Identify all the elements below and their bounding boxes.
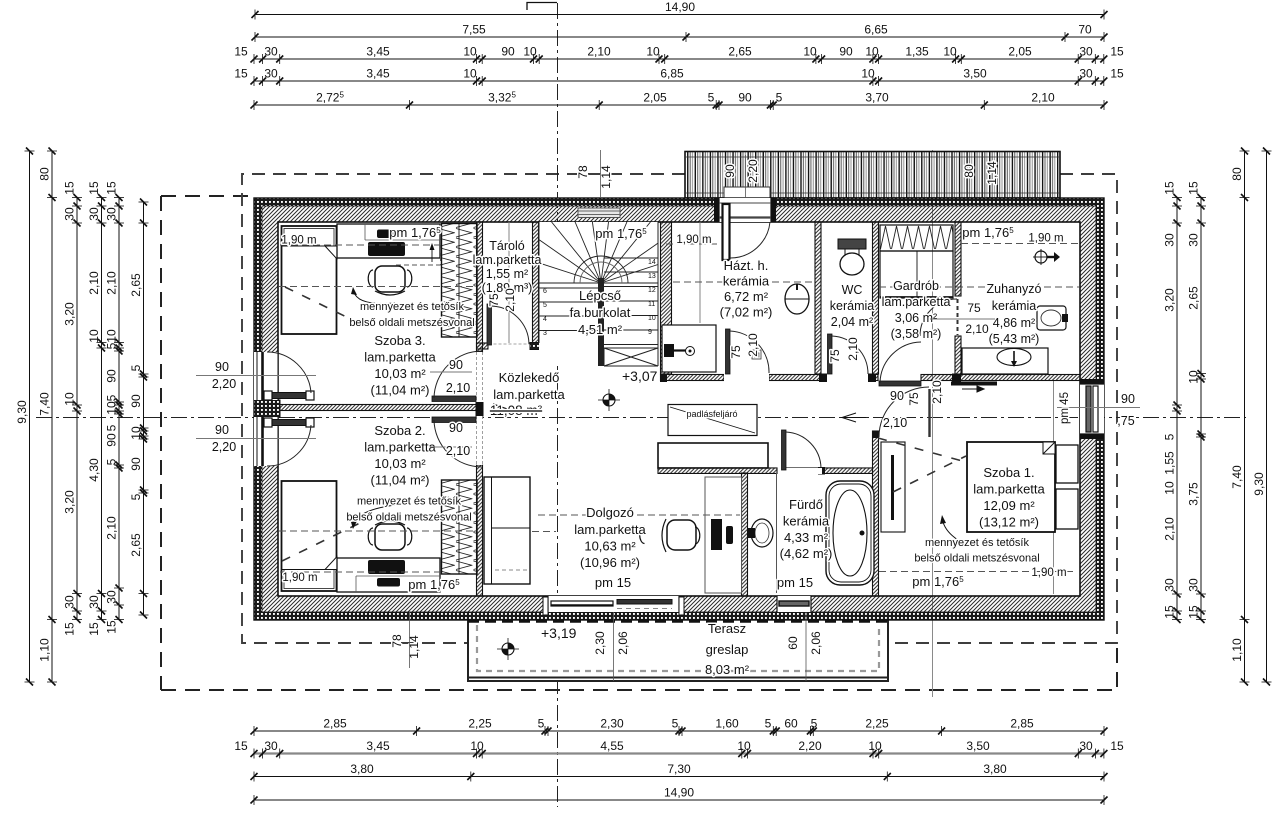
svg-text:3,45: 3,45: [366, 45, 390, 59]
svg-text:30: 30: [264, 67, 278, 81]
svg-text:14,90: 14,90: [664, 786, 694, 800]
svg-text:12,09 m²: 12,09 m²: [983, 498, 1035, 513]
svg-text:belső oldali metszésvonal: belső oldali metszésvonal: [346, 512, 471, 524]
svg-text:pm 1,765: pm 1,765: [962, 225, 1014, 240]
svg-text:3,20: 3,20: [63, 490, 77, 514]
svg-text:90: 90: [723, 164, 737, 178]
svg-text:4,33 m²: 4,33 m²: [784, 530, 829, 545]
svg-text:1,60: 1,60: [715, 717, 739, 731]
svg-text:Zuhanyzó: Zuhanyzó: [987, 282, 1042, 296]
svg-text:lam.parketta: lam.parketta: [493, 387, 565, 402]
svg-text:Gardrób: Gardrób: [893, 279, 939, 293]
svg-text:mennyezet és tetősík: mennyezet és tetősík: [925, 537, 1029, 549]
svg-text:(4,62 m²): (4,62 m²): [780, 546, 833, 561]
svg-text:mennyezet és tetősík: mennyezet és tetősík: [357, 496, 461, 508]
svg-text:15: 15: [234, 67, 248, 81]
svg-text:78: 78: [390, 634, 404, 648]
svg-text:15: 15: [1163, 605, 1177, 619]
svg-text:30: 30: [264, 739, 278, 753]
svg-text:90: 90: [105, 369, 119, 383]
svg-text:Terasz: Terasz: [708, 621, 746, 636]
svg-text:1,90 m: 1,90 m: [1031, 567, 1066, 579]
svg-text:3,20: 3,20: [1163, 288, 1177, 312]
svg-text:1,14: 1,14: [599, 165, 613, 189]
svg-text:10: 10: [1187, 370, 1201, 384]
svg-text:2,20: 2,20: [212, 440, 236, 454]
svg-text:2,65: 2,65: [1187, 286, 1201, 310]
svg-text:70: 70: [1078, 23, 1092, 37]
svg-text:2,20: 2,20: [798, 739, 822, 753]
svg-text:1,55: 1,55: [1163, 451, 1177, 475]
svg-text:5: 5: [129, 493, 143, 500]
svg-text:2,20: 2,20: [746, 159, 760, 183]
svg-text:3: 3: [543, 330, 547, 337]
svg-text:2,05: 2,05: [643, 91, 667, 105]
svg-text:Fürdő: Fürdő: [789, 497, 823, 512]
svg-text:10: 10: [737, 739, 751, 753]
svg-text:13: 13: [648, 273, 656, 280]
svg-text:lam.parketta: lam.parketta: [364, 440, 436, 455]
svg-text:2,85: 2,85: [1010, 717, 1034, 731]
svg-text:10: 10: [105, 329, 119, 343]
svg-text:15: 15: [1187, 605, 1201, 619]
svg-text:padlásfeljáró: padlásfeljáró: [686, 409, 737, 419]
svg-text:90: 90: [449, 358, 463, 372]
svg-text:1,10: 1,10: [1230, 638, 1244, 662]
svg-text:11,08 m²: 11,08 m²: [490, 403, 543, 418]
svg-text:30: 30: [264, 45, 278, 59]
svg-text:5: 5: [105, 394, 119, 401]
svg-text:2,04 m²: 2,04 m²: [831, 315, 873, 329]
svg-text:10: 10: [63, 392, 77, 406]
svg-text:kerámia: kerámia: [723, 274, 770, 289]
svg-text:5: 5: [708, 91, 715, 105]
svg-text:(11,04 m²): (11,04 m²): [371, 473, 430, 488]
svg-text:5: 5: [129, 364, 143, 371]
svg-text:1,90 m: 1,90 m: [282, 572, 317, 584]
svg-text:pm 1,765: pm 1,765: [595, 226, 647, 241]
svg-text:(13,12 m²): (13,12 m²): [979, 515, 1039, 530]
svg-text:5: 5: [1163, 433, 1177, 440]
svg-text:2,10: 2,10: [446, 381, 470, 395]
svg-text:5: 5: [765, 717, 772, 731]
svg-text:78: 78: [576, 165, 590, 179]
svg-text:2,65: 2,65: [129, 533, 143, 557]
svg-text:1,55 m²: 1,55 m²: [486, 267, 528, 281]
svg-text:90: 90: [105, 433, 119, 447]
svg-text:15: 15: [1163, 181, 1177, 195]
svg-text:4,55: 4,55: [600, 739, 624, 753]
svg-text:10: 10: [470, 739, 484, 753]
svg-text:5: 5: [105, 342, 119, 349]
svg-text:2,06: 2,06: [809, 631, 823, 655]
svg-text:4,30: 4,30: [87, 458, 101, 482]
svg-text:75: 75: [729, 345, 743, 359]
svg-text:7,30: 7,30: [667, 762, 691, 776]
svg-text:80: 80: [1230, 167, 1244, 181]
svg-text:2,10: 2,10: [930, 380, 944, 404]
svg-text:15: 15: [1110, 739, 1124, 753]
svg-text:1,14: 1,14: [985, 161, 999, 185]
svg-text:3,45: 3,45: [366, 67, 390, 81]
svg-text:15: 15: [105, 181, 119, 195]
svg-text:90: 90: [215, 423, 229, 437]
svg-text:10: 10: [463, 67, 477, 81]
svg-text:5: 5: [776, 91, 783, 105]
svg-text:7,55: 7,55: [462, 23, 486, 37]
svg-text:Közlekedő: Közlekedő: [499, 370, 560, 385]
svg-text:2,10: 2,10: [965, 322, 989, 336]
svg-text:lam.parketta: lam.parketta: [882, 295, 951, 309]
svg-text:10: 10: [523, 45, 537, 59]
svg-text:2,10: 2,10: [587, 45, 611, 59]
svg-text:2,65: 2,65: [129, 273, 143, 297]
svg-text:Dolgozó: Dolgozó: [586, 505, 634, 520]
svg-text:5: 5: [538, 717, 545, 731]
svg-text:10: 10: [1163, 481, 1177, 495]
svg-text:3,06 m²: 3,06 m²: [895, 311, 937, 325]
svg-text:Szoba 3.: Szoba 3.: [374, 333, 425, 348]
svg-text:30: 30: [1163, 578, 1177, 592]
svg-text:lam.parketta: lam.parketta: [473, 253, 542, 267]
svg-text:pm 1,765: pm 1,765: [408, 577, 460, 592]
svg-text:belső oldali metszésvonal: belső oldali metszésvonal: [914, 553, 1039, 565]
svg-text:90: 90: [215, 360, 229, 374]
svg-text:10: 10: [803, 45, 817, 59]
svg-text:30: 30: [105, 207, 119, 221]
svg-text:4,51 m²: 4,51 m²: [578, 322, 623, 337]
svg-text:11: 11: [648, 301, 655, 308]
svg-text:15: 15: [1187, 181, 1201, 195]
svg-text:10: 10: [868, 739, 882, 753]
svg-text:6,85: 6,85: [660, 67, 684, 81]
svg-text:15: 15: [105, 620, 119, 634]
svg-text:pm 1,765: pm 1,765: [912, 574, 964, 589]
svg-text:60: 60: [786, 636, 800, 650]
svg-text:90: 90: [1121, 392, 1135, 406]
svg-text:30: 30: [87, 595, 101, 609]
svg-text:9,30: 9,30: [15, 400, 29, 424]
svg-text:(11,04 m²): (11,04 m²): [371, 383, 430, 398]
svg-text:6,65: 6,65: [864, 23, 888, 37]
svg-text:30: 30: [1079, 45, 1093, 59]
svg-text:60: 60: [784, 717, 798, 731]
svg-text:1,90 m: 1,90 m: [676, 234, 711, 246]
svg-text:2,10: 2,10: [746, 333, 760, 357]
svg-text:30: 30: [87, 207, 101, 221]
svg-text:2,10: 2,10: [87, 271, 101, 295]
svg-text:6,72 m²: 6,72 m²: [724, 289, 769, 304]
svg-text:1,90 m: 1,90 m: [281, 235, 316, 247]
svg-text:3,45: 3,45: [366, 739, 390, 753]
svg-text:Tároló: Tároló: [489, 239, 524, 253]
svg-text:10: 10: [129, 426, 143, 440]
svg-text:10: 10: [648, 315, 656, 322]
svg-text:2,10: 2,10: [105, 271, 119, 295]
svg-text:3,70: 3,70: [865, 91, 889, 105]
svg-text:90: 90: [839, 45, 853, 59]
svg-text:90: 90: [890, 389, 904, 403]
svg-text:(7,02 m²): (7,02 m²): [720, 305, 773, 320]
svg-text:Szoba 2.: Szoba 2.: [374, 423, 425, 438]
svg-text:80: 80: [962, 164, 976, 178]
svg-text:2,05: 2,05: [1008, 45, 1032, 59]
svg-text:2,10: 2,10: [446, 444, 470, 458]
svg-text:75: 75: [487, 293, 501, 307]
svg-text:30: 30: [1079, 739, 1093, 753]
svg-text:10,03 m²: 10,03 m²: [374, 366, 426, 381]
svg-text:90: 90: [738, 91, 752, 105]
svg-text:9,30: 9,30: [1252, 472, 1266, 496]
svg-text:15: 15: [1110, 67, 1124, 81]
svg-text:2,10: 2,10: [503, 288, 517, 312]
svg-text:4,86 m²: 4,86 m²: [993, 316, 1035, 330]
svg-text:9: 9: [648, 329, 652, 336]
svg-text:15: 15: [1110, 45, 1124, 59]
svg-text:1,10: 1,10: [38, 638, 52, 662]
svg-text:2,20: 2,20: [212, 377, 236, 391]
svg-text:75: 75: [907, 392, 921, 406]
svg-text:(5,43 m²): (5,43 m²): [989, 332, 1040, 346]
svg-text:5: 5: [543, 302, 547, 309]
svg-text:(10,96 m²): (10,96 m²): [580, 555, 640, 570]
svg-text:2,06: 2,06: [616, 631, 630, 655]
svg-text:90: 90: [501, 45, 515, 59]
svg-text:2,85: 2,85: [323, 717, 347, 731]
svg-text:3,50: 3,50: [963, 67, 987, 81]
svg-text:pm 45: pm 45: [1059, 392, 1071, 424]
svg-text:75: 75: [828, 349, 842, 363]
svg-text:30: 30: [1079, 67, 1093, 81]
svg-text:+3,19: +3,19: [541, 625, 577, 641]
svg-text:lam.parketta: lam.parketta: [364, 350, 436, 365]
svg-text:,75: ,75: [1117, 414, 1134, 428]
svg-text:lam.parketta: lam.parketta: [973, 482, 1045, 497]
svg-text:10: 10: [943, 45, 957, 59]
svg-text:10: 10: [646, 45, 660, 59]
svg-text:2,10: 2,10: [105, 516, 119, 540]
svg-text:(3,58 m²): (3,58 m²): [891, 327, 942, 341]
svg-text:2,25: 2,25: [468, 717, 492, 731]
svg-text:2,30: 2,30: [600, 717, 624, 731]
svg-text:lam.parketta: lam.parketta: [574, 522, 646, 537]
svg-text:belső oldali metszésvonal: belső oldali metszésvonal: [349, 317, 474, 329]
svg-text:4: 4: [543, 316, 547, 323]
svg-text:kerámia: kerámia: [830, 299, 875, 313]
svg-text:2,25: 2,25: [865, 717, 889, 731]
svg-text:3,80: 3,80: [350, 762, 374, 776]
svg-text:90: 90: [129, 457, 143, 471]
svg-text:5: 5: [105, 424, 119, 431]
svg-text:10: 10: [463, 45, 477, 59]
svg-text:3,50: 3,50: [966, 739, 990, 753]
svg-text:30: 30: [1163, 233, 1177, 247]
svg-text:fa burkolat: fa burkolat: [570, 305, 631, 320]
svg-text:15: 15: [234, 45, 248, 59]
svg-text:30: 30: [63, 207, 77, 221]
svg-text:30: 30: [63, 595, 77, 609]
svg-text:Lépcső: Lépcső: [579, 288, 621, 303]
svg-text:30: 30: [1187, 233, 1201, 247]
svg-text:8,03 m²: 8,03 m²: [705, 662, 750, 677]
svg-text:kerámia: kerámia: [783, 514, 830, 529]
svg-text:15: 15: [234, 739, 248, 753]
svg-text:3,75: 3,75: [1187, 482, 1201, 506]
svg-text:5: 5: [672, 717, 679, 731]
svg-text:14: 14: [648, 259, 656, 266]
svg-text:2,10: 2,10: [1031, 91, 1055, 105]
svg-text:pm 15: pm 15: [595, 575, 631, 590]
svg-text:2,10: 2,10: [883, 416, 907, 430]
svg-text:7,40: 7,40: [1230, 465, 1244, 489]
svg-text:15: 15: [87, 622, 101, 636]
svg-text:Házt. h.: Házt. h.: [724, 258, 769, 273]
svg-text:10: 10: [865, 45, 879, 59]
svg-text:Szoba 1.: Szoba 1.: [983, 465, 1034, 480]
svg-text:80: 80: [38, 167, 52, 181]
svg-text:pm 1,765: pm 1,765: [389, 225, 441, 240]
svg-text:3,80: 3,80: [983, 762, 1007, 776]
svg-text:2,10: 2,10: [846, 337, 860, 361]
svg-text:30: 30: [1187, 578, 1201, 592]
svg-text:10: 10: [87, 329, 101, 343]
svg-text:+3,07: +3,07: [622, 368, 658, 384]
svg-text:30: 30: [105, 590, 119, 604]
svg-text:90: 90: [449, 421, 463, 435]
svg-text:kerámia: kerámia: [992, 299, 1037, 313]
svg-text:WC: WC: [842, 283, 863, 297]
svg-text:2,30: 2,30: [593, 631, 607, 655]
svg-text:pm 15: pm 15: [777, 575, 813, 590]
svg-text:7,40: 7,40: [38, 392, 52, 416]
svg-text:2,10: 2,10: [1163, 517, 1177, 541]
svg-text:10,63 m²: 10,63 m²: [584, 539, 636, 554]
svg-text:15: 15: [87, 181, 101, 195]
svg-text:10,03 m²: 10,03 m²: [374, 456, 426, 471]
svg-text:90: 90: [129, 394, 143, 408]
svg-text:1,35: 1,35: [905, 45, 929, 59]
svg-text:6: 6: [543, 288, 547, 295]
svg-text:75: 75: [967, 301, 981, 315]
svg-text:14,90: 14,90: [665, 0, 695, 14]
svg-text:1,90 m: 1,90 m: [1028, 233, 1063, 245]
svg-text:10: 10: [861, 67, 875, 81]
svg-text:mennyezet és tetősík: mennyezet és tetősík: [360, 301, 464, 313]
svg-text:5: 5: [105, 458, 119, 465]
svg-text:5: 5: [811, 717, 818, 731]
svg-text:15: 15: [63, 622, 77, 636]
svg-text:10: 10: [105, 401, 119, 415]
svg-text:3,20: 3,20: [63, 302, 77, 326]
svg-text:12: 12: [648, 287, 656, 294]
svg-text:greslap: greslap: [706, 642, 749, 657]
svg-text:15: 15: [63, 181, 77, 195]
svg-text:2,65: 2,65: [728, 45, 752, 59]
